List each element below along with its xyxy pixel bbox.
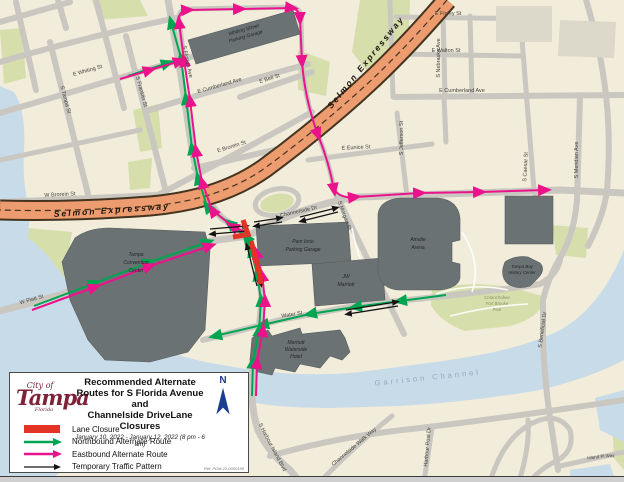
building-label-line: Tampa Bay (511, 264, 533, 269)
amalie-arena (378, 198, 460, 290)
map-frame-bottom (0, 476, 624, 482)
building-label-line: Hotel (290, 354, 303, 360)
north-label: N (212, 376, 234, 386)
park-label-line: Park (493, 307, 503, 312)
temporary-swatch (22, 462, 64, 472)
northbound-arrow-icon (53, 438, 62, 446)
unlabeled-building (505, 196, 553, 244)
street-label: S Nebraska Ave (436, 38, 442, 77)
northbound-swatch (22, 437, 64, 447)
street-label: E Cumberland Ave (439, 88, 485, 94)
legend-row-lane-closure: Lane Closure (22, 423, 242, 436)
reference-number: Ref: PDM-22-0000199 (204, 466, 244, 471)
park-label-line: Cotanchobee (484, 295, 510, 300)
street-label: S Meridian Ave (574, 142, 580, 179)
building-label-line: Marriott (288, 340, 306, 346)
building-label-line: Pam Iorio (292, 239, 314, 245)
building-label-line: Center (128, 268, 143, 274)
building-label-line: Convention (123, 260, 149, 266)
building-label-line: Tampa (128, 252, 143, 258)
legend-title-line2: Routes for S Florida Avenue and (70, 388, 210, 410)
building-label-line: Waterside (285, 347, 308, 353)
city-of-tampa-logo: City of Tampa Florida (16, 382, 72, 413)
legend-title-line1: Recommended Alternate (70, 377, 210, 388)
building-label-line: Parking Garage (285, 247, 320, 253)
legend-label: Northbound Alternate Route (72, 437, 171, 446)
map-page: E Whiting St S Tampa St S Franklin St S … (0, 0, 624, 482)
legend-box: City of Tampa Florida Recommended Altern… (9, 372, 249, 473)
eastbound-arrow-icon (53, 450, 62, 458)
north-arrow-icon (213, 386, 233, 416)
street-label: S Jefferson St (399, 120, 405, 155)
eastbound-swatch (22, 449, 64, 459)
lane-closure-swatch (22, 424, 64, 434)
legend-label: Temporary Traffic Pattern (72, 462, 162, 471)
building-label-line: History Center (508, 270, 536, 275)
legend-label: Eastbound Alternate Route (72, 450, 168, 459)
building-label-line: Arena (410, 245, 425, 251)
closure-bar-icon (24, 425, 60, 433)
building-label-line: JW (341, 274, 351, 280)
street-label: E Finley St (435, 11, 462, 17)
park-label-line: Fort Brooke (486, 301, 509, 306)
building-label-line: Amalie (409, 237, 426, 243)
temporary-arrow-icon (54, 464, 61, 470)
north-arrow: N (212, 376, 234, 421)
legend-label: Lane Closure (72, 425, 120, 434)
building-label: Tampa Bay History Center (508, 264, 536, 275)
legend-row-eastbound: Eastbound Alternate Route (22, 448, 242, 461)
legend-row-northbound: Northbound Alternate Route (22, 436, 242, 449)
building-label-line: Marriott (338, 282, 356, 288)
logo-tampa: Tampa (16, 387, 72, 408)
